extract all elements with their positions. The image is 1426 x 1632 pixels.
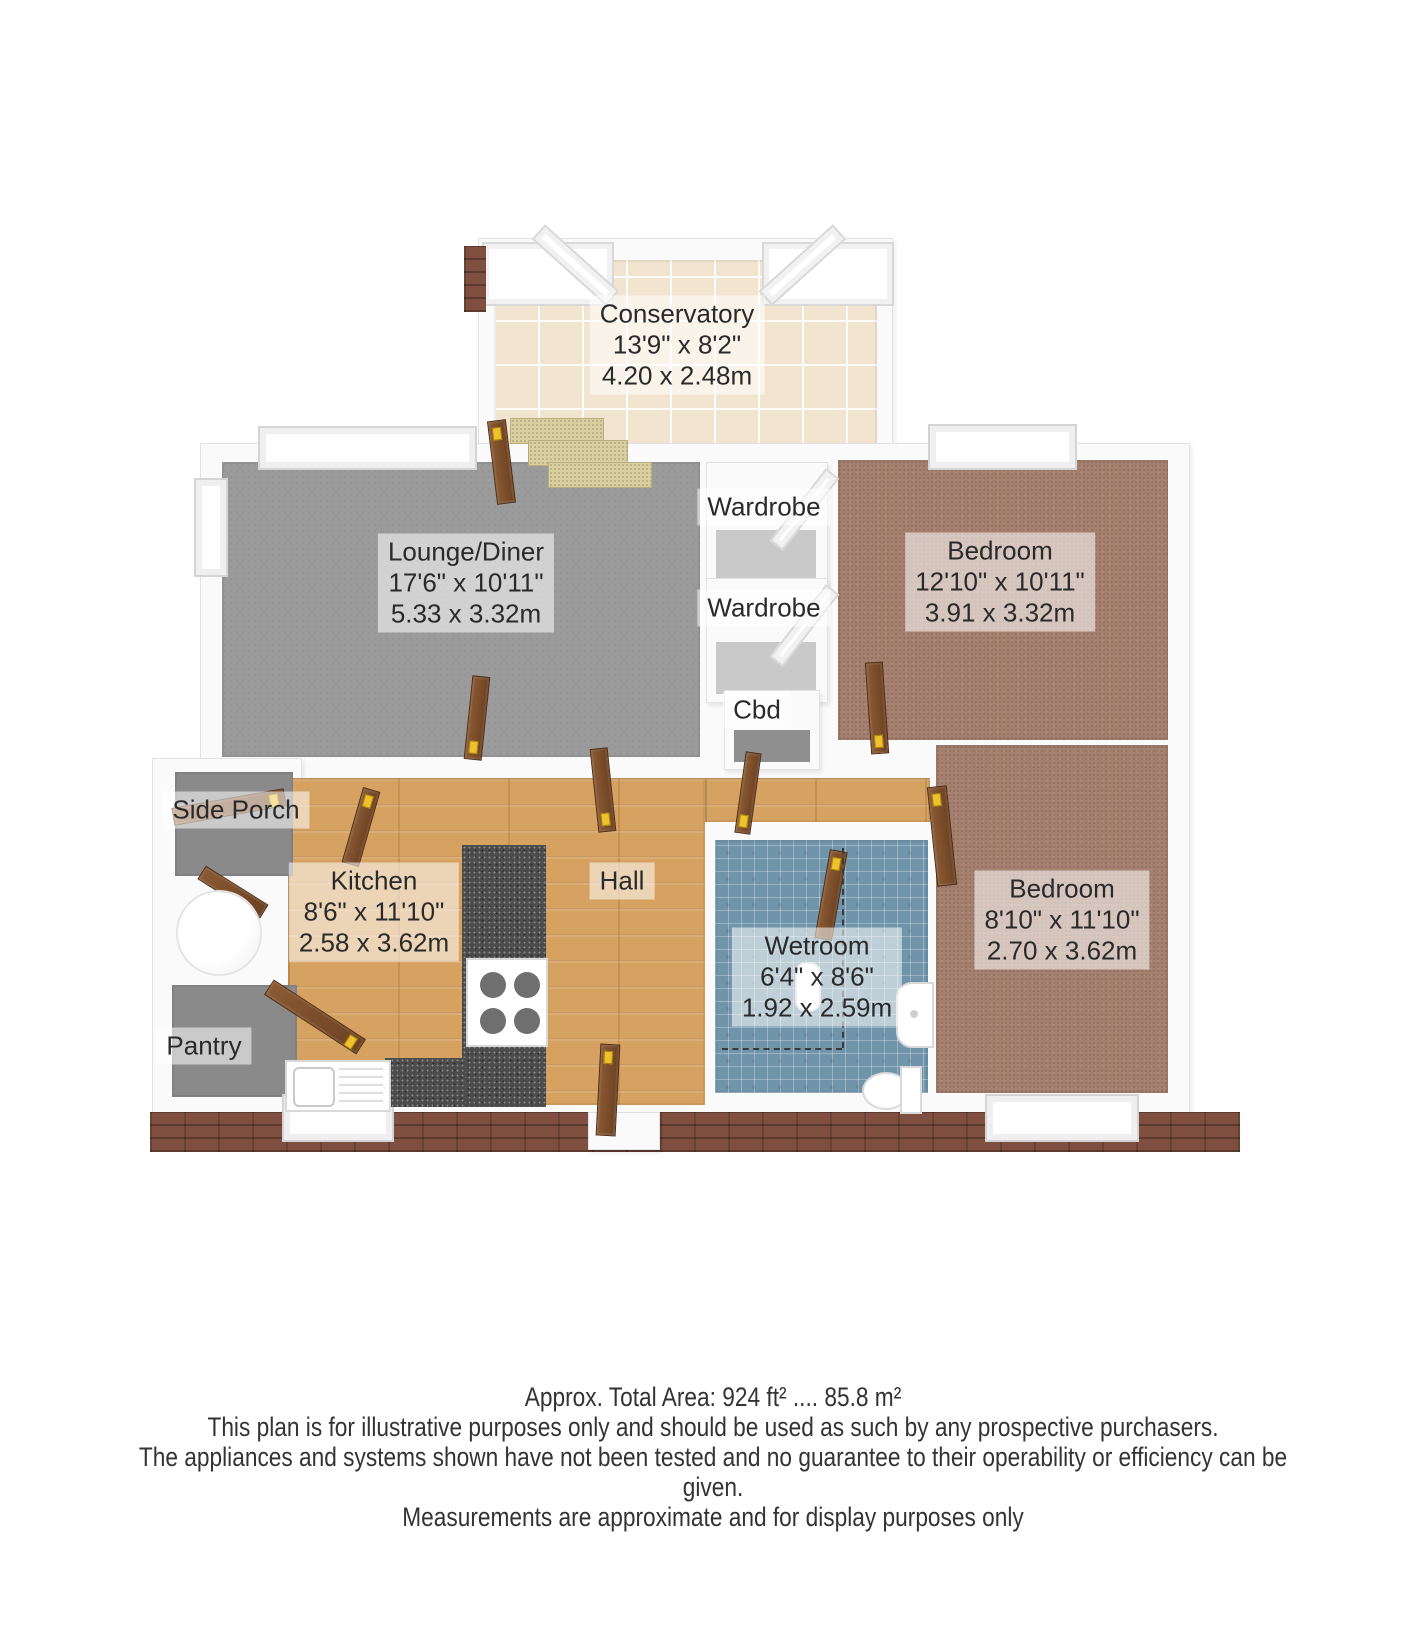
sink-bowl bbox=[293, 1067, 335, 1107]
room-imperial: 8'10" x 11'10" bbox=[984, 905, 1139, 936]
room-name: Side Porch bbox=[172, 795, 299, 826]
disclaimer-line-1: This plan is for illustrative purposes o… bbox=[114, 1412, 1312, 1442]
room-imperial: 12'10" x 10'11" bbox=[915, 567, 1085, 598]
room-label-wetroom: Wetroom 6'4" x 8'6" 1.92 x 2.59m bbox=[732, 928, 902, 1027]
hob-burner bbox=[514, 972, 540, 998]
room-label-pantry: Pantry bbox=[156, 1028, 251, 1065]
wardrobe1-interior bbox=[716, 530, 816, 582]
kitchen-hob bbox=[466, 958, 548, 1047]
room-imperial: 8'6" x 11'10" bbox=[299, 897, 449, 928]
room-metric: 1.92 x 2.59m bbox=[742, 993, 892, 1024]
lounge-side-window bbox=[194, 478, 228, 577]
step-3 bbox=[548, 462, 652, 488]
room-name: Pantry bbox=[166, 1031, 241, 1062]
room-name: Wardrobe bbox=[707, 492, 820, 523]
water-tank bbox=[178, 892, 260, 974]
lounge-bay-window bbox=[258, 426, 477, 470]
room-label-kitchen: Kitchen 8'6" x 11'10" 2.58 x 3.62m bbox=[289, 863, 459, 962]
kitchen-worktop-horizontal bbox=[385, 1058, 465, 1107]
room-metric: 2.70 x 3.62m bbox=[984, 936, 1139, 967]
disclaimer-line-3: Measurements are approximate and for dis… bbox=[114, 1502, 1312, 1532]
room-label-wardrobe2: Wardrobe bbox=[697, 590, 830, 627]
room-name: Cbd bbox=[733, 695, 781, 726]
wetroom-toilet-cistern bbox=[900, 1066, 922, 1114]
room-name: Lounge/Diner bbox=[388, 537, 544, 568]
room-metric: 4.20 x 2.48m bbox=[600, 361, 755, 392]
hob-burner bbox=[480, 972, 506, 998]
kitchen-sink bbox=[285, 1060, 391, 1112]
hob-burner bbox=[480, 1008, 506, 1034]
conservatory-brick-pier bbox=[464, 246, 486, 312]
room-metric: 5.33 x 3.32m bbox=[388, 599, 544, 630]
room-name: Hall bbox=[600, 866, 645, 897]
room-imperial: 17'6" x 10'11" bbox=[388, 568, 544, 599]
room-label-side-porch: Side Porch bbox=[162, 792, 309, 829]
room-label-wardrobe1: Wardrobe bbox=[697, 489, 830, 526]
room-metric: 3.91 x 3.32m bbox=[915, 598, 1085, 629]
room-name: Wetroom bbox=[742, 931, 892, 962]
room-label-lounge: Lounge/Diner 17'6" x 10'11" 5.33 x 3.32m bbox=[378, 534, 554, 633]
room-name: Bedroom bbox=[915, 536, 1085, 567]
room-label-bedroom2: Bedroom 8'10" x 11'10" 2.70 x 3.62m bbox=[974, 871, 1149, 970]
room-name: Conservatory bbox=[600, 299, 755, 330]
room-label-bedroom1: Bedroom 12'10" x 10'11" 3.91 x 3.32m bbox=[905, 533, 1095, 632]
sink-drainer bbox=[339, 1068, 383, 1102]
hob-burner bbox=[514, 1008, 540, 1034]
footer: Approx. Total Area: 924 ft² .... 85.8 m²… bbox=[0, 1382, 1426, 1532]
basin-drain bbox=[910, 1010, 918, 1018]
room-imperial: 13'9" x 8'2" bbox=[600, 330, 755, 361]
wardrobe2-interior bbox=[716, 642, 816, 694]
room-imperial: 6'4" x 8'6" bbox=[742, 962, 892, 993]
room-name: Bedroom bbox=[984, 874, 1139, 905]
total-area-text: Approx. Total Area: 924 ft² .... 85.8 m² bbox=[114, 1382, 1312, 1412]
room-name: Wardrobe bbox=[707, 593, 820, 624]
bedroom2-window bbox=[985, 1094, 1139, 1142]
bedroom1-window bbox=[928, 424, 1077, 470]
room-label-conservatory: Conservatory 13'9" x 8'2" 4.20 x 2.48m bbox=[590, 296, 765, 395]
disclaimer-line-2: The appliances and systems shown have no… bbox=[114, 1442, 1312, 1502]
room-label-cbd: Cbd bbox=[723, 692, 791, 729]
shower-screen-line-horizontal bbox=[722, 1048, 842, 1050]
room-name: Kitchen bbox=[299, 866, 449, 897]
floor-plan: Conservatory 13'9" x 8'2" 4.20 x 2.48m L… bbox=[0, 0, 1426, 1632]
room-label-hall: Hall bbox=[590, 863, 655, 900]
room-metric: 2.58 x 3.62m bbox=[299, 928, 449, 959]
